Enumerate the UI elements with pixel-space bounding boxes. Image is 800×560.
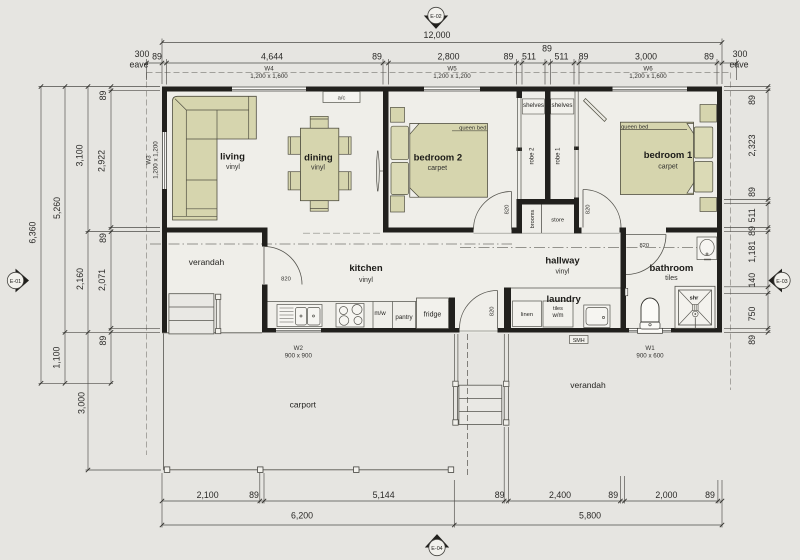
svg-text:E-04: E-04 [431,546,442,552]
svg-text:2,922: 2,922 [96,150,106,172]
svg-text:queen bed: queen bed [459,126,486,132]
svg-text:bedroom 1: bedroom 1 [644,150,693,161]
svg-text:laundry: laundry [547,294,582,305]
svg-text:300: 300 [733,49,748,59]
svg-text:5,260: 5,260 [52,197,62,219]
svg-text:kitchen: kitchen [349,263,382,274]
svg-text:fridge: fridge [424,312,442,319]
svg-text:5,800: 5,800 [579,511,601,521]
svg-text:W5: W5 [447,66,457,73]
svg-text:E-03: E-03 [776,279,787,285]
svg-text:820: 820 [490,306,496,316]
svg-text:3,000: 3,000 [635,52,657,62]
svg-text:300: 300 [135,49,150,59]
svg-text:2,160: 2,160 [75,268,85,290]
svg-text:1,200 x 1,200: 1,200 x 1,200 [153,141,160,179]
svg-text:eave: eave [729,60,748,70]
svg-text:2,323: 2,323 [747,134,757,156]
svg-text:store: store [551,218,564,224]
svg-text:89: 89 [608,490,618,500]
svg-text:1,200 x 1,600: 1,200 x 1,600 [250,73,288,80]
svg-text:89: 89 [704,52,714,62]
svg-text:820: 820 [586,204,592,214]
svg-text:89: 89 [579,52,589,62]
svg-text:1,100: 1,100 [51,346,61,368]
svg-text:robe 2: robe 2 [529,147,535,165]
svg-text:living: living [220,152,245,163]
svg-text:89: 89 [504,52,514,62]
svg-text:89: 89 [249,490,259,500]
svg-text:89: 89 [372,52,382,62]
svg-text:2,000: 2,000 [655,490,677,500]
svg-text:89: 89 [747,95,757,105]
svg-text:w/m: w/m [552,313,564,319]
svg-text:140: 140 [747,273,757,288]
svg-text:vinyl: vinyl [359,277,373,284]
svg-text:verandah: verandah [189,257,225,267]
svg-text:5,144: 5,144 [373,490,395,500]
svg-text:carpet: carpet [428,165,448,172]
svg-text:511: 511 [554,52,568,62]
svg-text:750: 750 [747,306,757,321]
svg-text:hallway: hallway [545,256,580,267]
svg-text:89: 89 [542,44,552,54]
svg-text:89: 89 [747,335,757,345]
svg-text:2,071: 2,071 [97,269,107,291]
svg-text:900 x 600: 900 x 600 [636,353,664,360]
svg-text:511: 511 [747,208,757,222]
svg-text:89: 89 [495,490,505,500]
svg-text:robe 1: robe 1 [556,147,562,165]
svg-text:W4: W4 [264,66,274,73]
svg-text:6,200: 6,200 [291,511,313,521]
svg-text:E-01: E-01 [10,279,21,285]
svg-text:dining: dining [304,153,333,164]
svg-text:pantry: pantry [395,314,413,321]
svg-text:820: 820 [639,243,649,249]
svg-text:89: 89 [98,233,108,243]
svg-text:2,400: 2,400 [549,490,571,500]
svg-text:a/c: a/c [338,96,346,102]
svg-text:vinyl: vinyl [226,164,240,171]
svg-text:820: 820 [504,205,510,215]
svg-text:bedroom 2: bedroom 2 [414,153,463,164]
svg-text:W6: W6 [643,66,653,73]
svg-text:4,644: 4,644 [261,52,283,62]
svg-text:queen bed: queen bed [621,125,648,131]
svg-text:W3: W3 [146,155,153,165]
svg-text:820: 820 [281,277,291,283]
svg-text:1,200 x 1,200: 1,200 x 1,200 [433,73,471,80]
svg-text:89: 89 [705,490,715,500]
svg-text:511: 511 [522,52,536,62]
svg-text:SMH: SMH [573,338,585,344]
svg-text:tiles: tiles [553,306,563,312]
svg-text:shelves: shelves [552,102,573,109]
svg-text:6,360: 6,360 [28,221,38,243]
svg-text:12,000: 12,000 [424,30,451,40]
svg-text:carport: carport [290,400,317,410]
svg-text:eave: eave [129,60,148,70]
svg-text:89: 89 [98,336,108,346]
svg-text:W2: W2 [294,345,304,352]
svg-text:bathroom: bathroom [649,263,693,274]
svg-text:2,800: 2,800 [437,52,459,62]
svg-text:verandah: verandah [570,380,606,390]
svg-text:vinyl: vinyl [311,165,325,172]
svg-text:linen: linen [521,312,533,318]
svg-text:E-02: E-02 [430,14,441,20]
svg-text:1,200 x 1,600: 1,200 x 1,600 [629,73,667,80]
svg-text:tiles: tiles [665,275,678,282]
svg-text:89: 89 [747,226,757,236]
svg-text:1,181: 1,181 [747,241,757,263]
svg-text:shelves: shelves [523,102,544,109]
svg-text:W1: W1 [645,345,655,352]
svg-text:900 x 900: 900 x 900 [285,353,313,360]
svg-text:m/w: m/w [374,310,386,317]
svg-text:shr: shr [690,296,700,302]
svg-text:89: 89 [98,91,108,101]
svg-text:89: 89 [152,52,162,62]
svg-text:89: 89 [747,187,757,197]
svg-text:vinyl: vinyl [555,269,569,276]
svg-text:carpet: carpet [658,164,678,171]
svg-text:2,100: 2,100 [197,490,219,500]
svg-text:3,000: 3,000 [76,392,86,414]
svg-text:3,100: 3,100 [75,144,85,166]
svg-text:brooms: brooms [530,209,536,228]
